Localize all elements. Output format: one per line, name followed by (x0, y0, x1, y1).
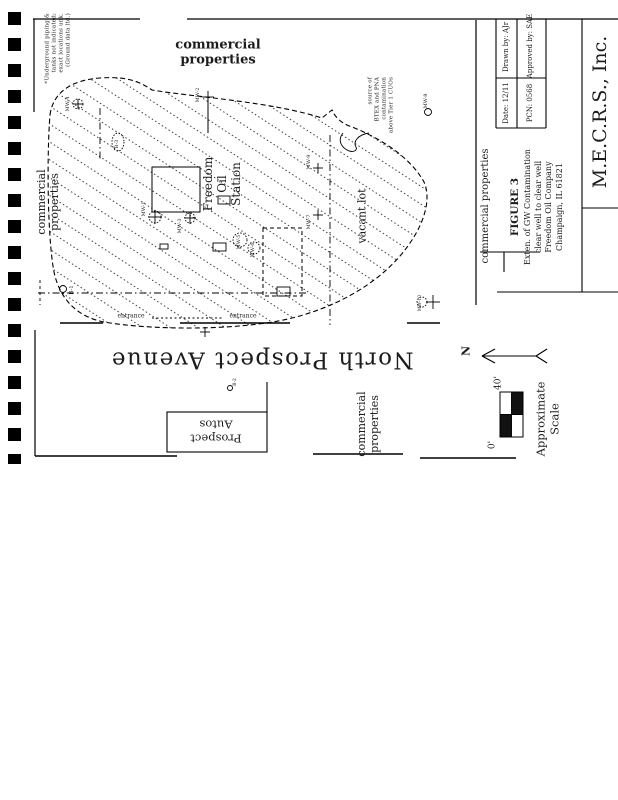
well-label: MW-10 (417, 295, 423, 311)
titleblock-drawn-by: Drawn by: AJr (502, 22, 510, 72)
figure-caption: FIGURE 3 Exten. of GW Contamination clea… (509, 149, 565, 265)
well-label: B-2 (232, 378, 238, 386)
prospect-autos-label: Prospect Autos (190, 417, 241, 444)
well-symbol: MW-8 (423, 94, 432, 116)
titleblock-pcn: PCN: 0568 (526, 84, 534, 122)
well-label: B-1 (69, 285, 75, 295)
figure-caption-line: Freedom Oil Company (544, 149, 554, 265)
entrance-label-1: entrance (117, 312, 144, 319)
scale-forty-label: 40' (494, 376, 505, 390)
figure-number: FIGURE 3 (509, 149, 521, 265)
approximate-scale-label: Approximate Scale (534, 382, 561, 457)
commercial-properties-label-titleblock: commercial properties (480, 149, 492, 264)
well-label: MW-8 (423, 94, 429, 109)
company-name: M.E.C.R.S., Inc. (589, 36, 611, 189)
well-symbol: MW-10 (417, 295, 440, 311)
well-label: MW-4 (65, 97, 71, 112)
figure-caption-line: clear well to clear well (534, 149, 544, 265)
north-arrow (482, 349, 547, 363)
commercial-properties-label-top: commercial properties (175, 38, 260, 69)
street-name-label: North Prospect Avenue (52, 345, 472, 372)
well-label: MW-2 (195, 88, 201, 103)
scale-zero-label: 0' (488, 441, 499, 449)
scanned-figure-page: MW-4 MW-2 B-3 MW-1 MW-3 MW-5 MW-6 MW-9 M… (0, 0, 618, 800)
well-label: MW-6 (250, 243, 256, 258)
vacant-lot-label: vacant lot (357, 188, 370, 243)
entrance-label-2: entrance (229, 312, 256, 319)
well-label: MW-9 (306, 155, 312, 170)
titleblock-approved-by: Approved by: SAE (526, 14, 534, 78)
well-label: MW-7 (306, 215, 312, 230)
well-symbol: B-2 (228, 378, 239, 391)
curb-cross-mark (200, 327, 210, 337)
well-label: MW-5 (236, 235, 242, 250)
well-label: MW-3 (177, 219, 183, 234)
figure-caption-line: Champaign, IL 61821 (555, 149, 565, 265)
well-label: B-3 (114, 140, 120, 149)
street-curb-lines (35, 323, 516, 458)
scale-bar (500, 392, 523, 437)
commercial-properties-label-left: commercial properties (36, 169, 62, 234)
commercial-properties-label-bottom: commercial properties (356, 391, 382, 456)
map-footnote: *Underground piping & tanks not indicate… (44, 13, 72, 85)
well-label: MW-1 (141, 202, 147, 217)
north-label: N (461, 346, 474, 356)
station-label: Freedom Oil Station (201, 157, 243, 212)
titleblock-date: Date: 12/11 (502, 82, 510, 124)
figure-caption-line: Exten. of GW Contamination (523, 149, 533, 265)
source-note: source of BTEX and PNA contamination abo… (367, 77, 395, 157)
